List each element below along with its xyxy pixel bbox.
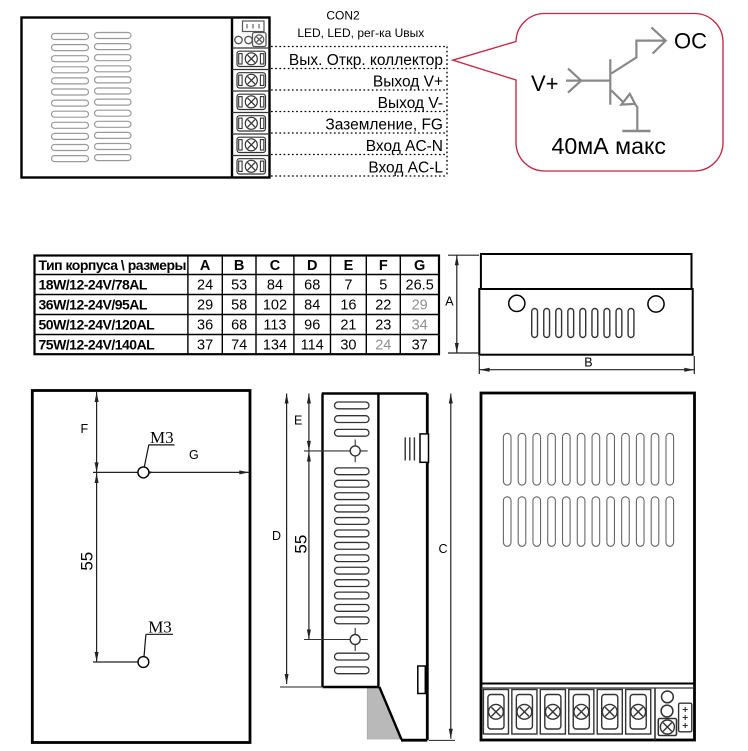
svg-text:B: B bbox=[234, 258, 244, 274]
svg-text:68: 68 bbox=[304, 278, 320, 294]
svg-text:22: 22 bbox=[375, 298, 391, 314]
svg-text:F: F bbox=[81, 422, 89, 436]
svg-text:E: E bbox=[344, 258, 354, 274]
svg-text:OC: OC bbox=[674, 28, 707, 53]
svg-text:Вых. Откр. коллектор: Вых. Откр. коллектор bbox=[289, 52, 443, 69]
svg-text:113: 113 bbox=[263, 318, 286, 334]
svg-text:D: D bbox=[307, 258, 317, 274]
svg-text:E: E bbox=[294, 413, 302, 427]
svg-text:68: 68 bbox=[231, 318, 247, 334]
svg-text:84: 84 bbox=[267, 278, 283, 294]
svg-text:16: 16 bbox=[340, 298, 356, 314]
svg-text:24: 24 bbox=[197, 278, 213, 294]
svg-text:29: 29 bbox=[412, 298, 428, 314]
svg-text:7: 7 bbox=[344, 278, 352, 294]
svg-text:18W/12-24V/78AL: 18W/12-24V/78AL bbox=[39, 277, 148, 293]
svg-text:114: 114 bbox=[301, 338, 324, 354]
svg-text:V+: V+ bbox=[531, 71, 559, 96]
svg-text:Заземление, FG: Заземление, FG bbox=[325, 116, 443, 133]
svg-text:75W/12-24V/140AL: 75W/12-24V/140AL bbox=[39, 337, 156, 353]
svg-text:Вход AC-N: Вход AC-N bbox=[366, 138, 443, 155]
svg-text:36W/12-24V/95AL: 36W/12-24V/95AL bbox=[39, 297, 148, 313]
svg-text:CON2: CON2 bbox=[326, 9, 360, 23]
svg-text:G: G bbox=[189, 448, 199, 462]
svg-text:34: 34 bbox=[412, 318, 428, 334]
svg-text:21: 21 bbox=[340, 318, 356, 334]
svg-text:A: A bbox=[445, 294, 454, 308]
svg-text:40мА макс: 40мА макс bbox=[552, 133, 666, 159]
svg-text:A: A bbox=[200, 258, 211, 274]
svg-text:74: 74 bbox=[231, 338, 247, 354]
svg-text:Тип корпуса \ размеры: Тип корпуса \ размеры bbox=[39, 257, 186, 273]
svg-text:C: C bbox=[439, 542, 448, 556]
svg-text:G: G bbox=[414, 258, 425, 274]
svg-text:96: 96 bbox=[304, 318, 320, 334]
svg-text:30: 30 bbox=[340, 338, 356, 354]
svg-text:36: 36 bbox=[197, 318, 213, 334]
svg-text:26.5: 26.5 bbox=[406, 278, 434, 294]
svg-text:Выход V+: Выход V+ bbox=[373, 73, 443, 90]
svg-text:23: 23 bbox=[375, 318, 391, 334]
svg-text:29: 29 bbox=[197, 298, 213, 314]
svg-text:M3: M3 bbox=[148, 618, 172, 637]
svg-text:5: 5 bbox=[379, 278, 387, 294]
svg-text:F: F bbox=[379, 258, 388, 274]
svg-text:53: 53 bbox=[231, 278, 247, 294]
svg-text:50W/12-24V/120AL: 50W/12-24V/120AL bbox=[39, 317, 156, 333]
svg-text:37: 37 bbox=[197, 338, 213, 354]
svg-text:102: 102 bbox=[263, 298, 287, 314]
svg-text:M3: M3 bbox=[150, 428, 174, 447]
svg-text:134: 134 bbox=[263, 338, 287, 354]
svg-text:84: 84 bbox=[304, 298, 320, 314]
svg-text:55: 55 bbox=[291, 535, 310, 554]
svg-text:D: D bbox=[272, 529, 281, 543]
svg-text:24: 24 bbox=[375, 338, 391, 354]
svg-text:LED, LED, рег-ка Uвых: LED, LED, рег-ка Uвых bbox=[297, 26, 424, 40]
svg-text:37: 37 bbox=[412, 338, 428, 354]
svg-text:B: B bbox=[584, 356, 592, 370]
svg-text:Вход AC-L: Вход AC-L bbox=[368, 159, 443, 176]
svg-text:55: 55 bbox=[78, 552, 97, 571]
svg-text:Выход V-: Выход V- bbox=[378, 95, 443, 112]
svg-text:58: 58 bbox=[231, 298, 247, 314]
svg-text:C: C bbox=[270, 258, 281, 274]
